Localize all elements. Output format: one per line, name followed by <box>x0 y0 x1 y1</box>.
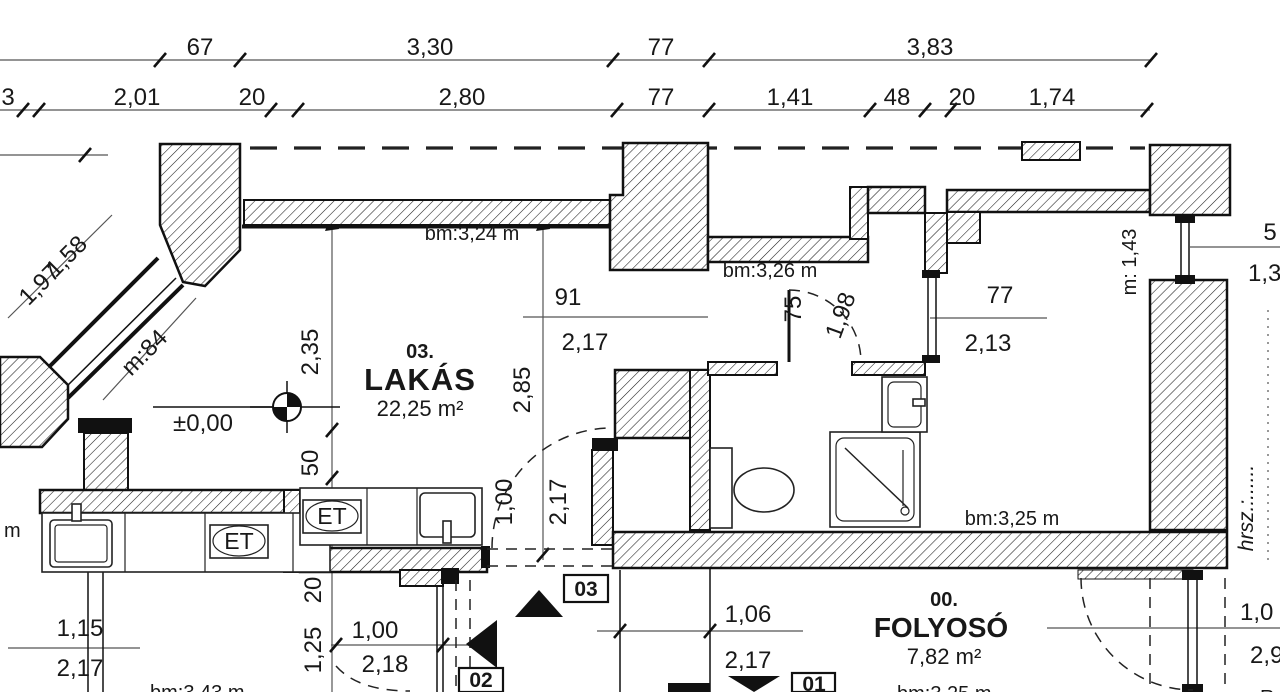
dimension-labels: 67 3,30 77 3,83 3 2,01 20 2,80 77 1,41 4… <box>1 34 1280 682</box>
dim-sub-20b: 20 <box>949 84 976 111</box>
floorplan-canvas: 67 3,30 77 3,83 3 2,01 20 2,80 77 1,41 4… <box>0 0 1280 692</box>
section-markers <box>459 575 835 692</box>
height-clip-folyoso: bm:3,25 m <box>897 683 991 692</box>
room-folyoso-number: 00. <box>930 589 958 611</box>
dim-door-lakas-h: 2,17 <box>545 479 572 526</box>
dim-sub-174: 1,74 <box>1029 84 1076 111</box>
dim-sub-141: 1,41 <box>767 84 814 111</box>
room-lakas-name: LAKÁS <box>364 362 476 397</box>
dim-m143: m: 1,43 <box>1119 229 1141 296</box>
dim-open91-h: 2,17 <box>562 329 609 356</box>
wall-lakas-right-strip <box>592 450 613 545</box>
et-label-2: ET <box>317 503 346 529</box>
dim-r10: 1,0 <box>1240 599 1273 626</box>
wall-corridor-top <box>613 532 1227 568</box>
marker-triangle-01-icon <box>728 676 780 692</box>
sink-tap <box>72 504 81 521</box>
dim-v235: 2,35 <box>297 329 324 376</box>
m-left-label: m <box>4 520 21 542</box>
dim-v285: 2,85 <box>509 367 536 414</box>
wall-hall-top <box>708 237 868 262</box>
height-clip-left: bm:3,43 m <box>150 682 244 692</box>
wall-window-band-top <box>244 200 610 225</box>
et-label-1: ET <box>224 528 253 554</box>
kitchen-sink <box>50 520 112 567</box>
dim-b20: 20 <box>300 577 327 604</box>
dim-r13: 1,3 <box>1248 260 1280 287</box>
level-label: ±0,00 <box>173 410 233 437</box>
height-room-right: bm:3,25 m <box>965 508 1059 530</box>
dim-door-lakas-w: 1,00 <box>491 479 518 526</box>
height-hall: bm:3,26 m <box>723 260 817 282</box>
dim-win77-h: 2,13 <box>965 330 1012 357</box>
basin-tap <box>913 399 925 406</box>
dim-sub-48: 48 <box>884 84 911 111</box>
dim-r29: 2,9 <box>1250 642 1280 669</box>
hrsz-label: hrsz.:...... <box>1235 465 1258 551</box>
door-sill <box>1078 570 1193 579</box>
wall-right-column <box>1150 280 1227 530</box>
wall-bath-left <box>690 370 710 530</box>
dim-sub-201: 2,01 <box>114 84 161 111</box>
shower-tray <box>830 432 920 527</box>
dim-sub-3: 3 <box>1 84 14 111</box>
dim-top-67: 67 <box>187 34 214 61</box>
wall-top-left-pillar <box>160 144 240 286</box>
dim-v50: 50 <box>297 450 324 477</box>
dim-b218: 2,18 <box>362 651 409 678</box>
marker-label-01: 01 <box>802 673 826 692</box>
room-folyoso-name: FOLYOSÓ <box>874 612 1008 643</box>
dim-top-77: 77 <box>648 34 675 61</box>
dim-top-383: 3,83 <box>907 34 954 61</box>
marker-label-03: 03 <box>574 578 597 601</box>
dim-b125: 1,25 <box>300 627 327 674</box>
room-lakas-area: 22,25 m² <box>377 396 464 421</box>
wall-left-pillar <box>0 357 68 447</box>
marker-triangle-03-icon <box>515 590 563 617</box>
dim-door-bath-w: 75 <box>780 296 807 323</box>
wall-center-pillar <box>610 143 708 270</box>
room-lakas-number: 03. <box>406 341 434 363</box>
dim-k217: 2,17 <box>57 655 104 682</box>
dim-c217: 2,17 <box>725 647 772 674</box>
toilet-bowl <box>734 468 794 512</box>
dim-win77-w: 77 <box>987 282 1014 309</box>
dim-c106: 1,06 <box>725 601 772 628</box>
dim-b100: 1,00 <box>352 617 399 644</box>
wall-left-column <box>84 433 128 490</box>
r-clip-label: R <box>1260 687 1274 692</box>
dim-sub-20a: 20 <box>239 84 266 111</box>
dim-top-330: 3,30 <box>407 34 454 61</box>
dim-sub-77: 77 <box>648 84 675 111</box>
door-swing-arc-entry <box>1081 578 1193 690</box>
wall-right-top <box>1150 145 1230 215</box>
height-lakas: bm:3,24 m <box>425 223 519 245</box>
dim-r5: 5 <box>1263 219 1276 246</box>
wall-right-room-top <box>947 190 1150 212</box>
marker-label-02: 02 <box>469 669 492 692</box>
floorplan-drawing: 67 3,30 77 3,83 3 2,01 20 2,80 77 1,41 4… <box>0 0 1280 692</box>
dim-k115: 1,15 <box>57 615 104 642</box>
toilet-cistern <box>710 448 732 528</box>
room-folyoso-area: 7,82 m² <box>907 644 982 669</box>
dim-sub-280: 2,80 <box>439 84 486 111</box>
dim-open91-w: 91 <box>555 284 582 311</box>
